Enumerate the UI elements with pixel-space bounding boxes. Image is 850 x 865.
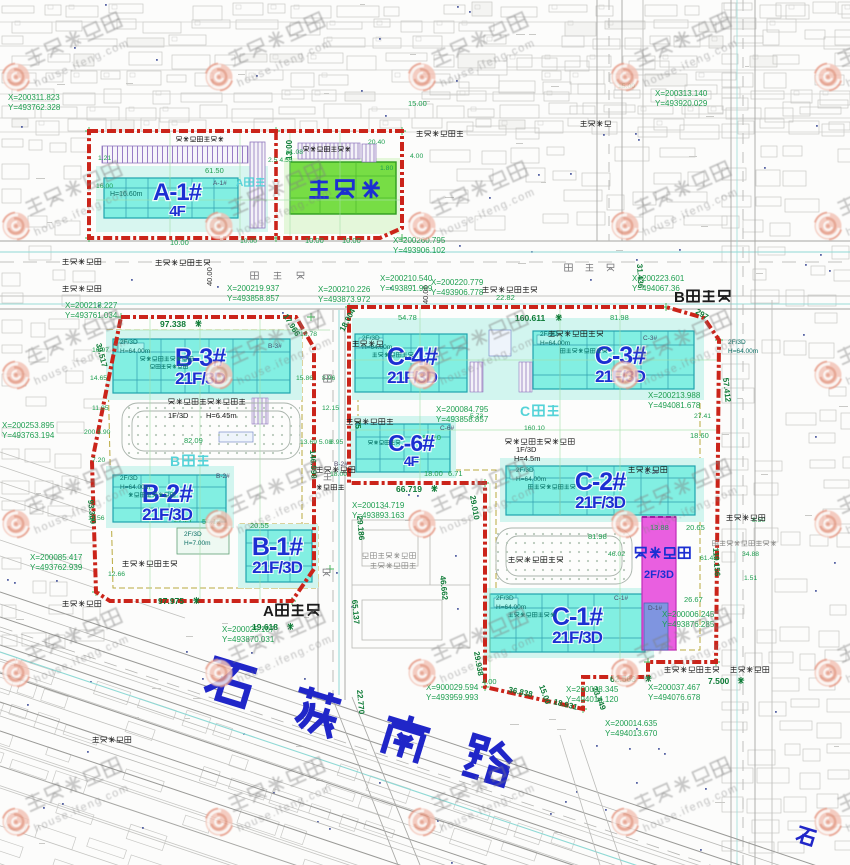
svg-text:1.21: 1.21: [98, 155, 111, 162]
svg-text:61.43: 61.43: [700, 555, 717, 562]
svg-text:7.20: 7.20: [92, 457, 105, 464]
svg-text:31.436: 31.436: [635, 264, 645, 289]
svg-text:4F: 4F: [169, 203, 185, 220]
svg-text:A-1#: A-1#: [213, 180, 227, 187]
svg-text:81.98: 81.98: [610, 313, 629, 322]
svg-text:Y=493906.778: Y=493906.778: [431, 288, 484, 297]
svg-text:1.51: 1.51: [744, 575, 757, 582]
svg-text:4F: 4F: [404, 453, 420, 469]
svg-text:2F/3D: 2F/3D: [644, 569, 674, 581]
svg-text:A: A: [236, 178, 243, 189]
svg-text:X=200210.226: X=200210.226: [318, 285, 371, 294]
svg-text:C-1#: C-1#: [614, 595, 628, 602]
svg-text:H=7.00m: H=7.00m: [184, 540, 211, 547]
svg-text:X=200014.635: X=200014.635: [605, 719, 658, 728]
svg-text:1F/3D: 1F/3D: [168, 411, 189, 420]
svg-text:15.86: 15.86: [296, 375, 313, 382]
svg-text:15.00: 15.00: [408, 99, 427, 108]
svg-text:D-1#: D-1#: [648, 605, 662, 612]
svg-text:C: C: [520, 403, 530, 419]
svg-text:8.95: 8.95: [330, 439, 343, 446]
svg-text:1F/3D: 1F/3D: [516, 445, 537, 454]
svg-text:40.00: 40.00: [421, 285, 430, 304]
svg-text:1.80: 1.80: [380, 165, 393, 172]
svg-text:X=200311.823: X=200311.823: [8, 93, 60, 102]
svg-text:X=200219.937: X=200219.937: [227, 284, 280, 293]
svg-text:18.00: 18.00: [424, 469, 443, 478]
svg-text:B: B: [170, 453, 180, 469]
svg-text:21F/3D: 21F/3D: [252, 558, 302, 577]
svg-text:Y=493763.194: Y=493763.194: [2, 431, 55, 440]
svg-text:160.611: 160.611: [515, 313, 546, 323]
svg-text:27.41: 27.41: [694, 413, 711, 420]
svg-text:Y=494076.678: Y=494076.678: [648, 693, 701, 702]
svg-text:Y=493873.972: Y=493873.972: [318, 295, 371, 304]
svg-text:13.69 5.08: 13.69 5.08: [300, 439, 332, 446]
svg-text:Y=493762.328: Y=493762.328: [8, 103, 61, 112]
svg-text:X=200220.779: X=200220.779: [431, 278, 484, 287]
svg-text:12.66: 12.66: [108, 571, 125, 578]
svg-text:66.719: 66.719: [396, 484, 422, 494]
svg-text:C-2#: C-2#: [575, 468, 626, 496]
svg-text:21F/3D: 21F/3D: [575, 493, 625, 512]
svg-text:H=64.00m: H=64.00m: [540, 340, 570, 347]
svg-text:10.00: 10.00: [170, 238, 189, 247]
svg-text:X=200037.467: X=200037.467: [648, 683, 701, 692]
svg-text:11.85: 11.85: [92, 405, 109, 412]
svg-text:10.00: 10.00: [240, 238, 257, 245]
svg-text:Y=493920.029: Y=493920.029: [655, 99, 708, 108]
svg-text:46.02: 46.02: [608, 551, 625, 558]
svg-text:160.10: 160.10: [524, 425, 545, 432]
svg-text:Y=494013.670: Y=494013.670: [605, 729, 658, 738]
svg-text:A-1#: A-1#: [153, 179, 202, 206]
svg-text:2F/3D: 2F/3D: [540, 331, 558, 338]
svg-text:B-1#: B-1#: [252, 533, 303, 561]
svg-text:4.00: 4.00: [410, 153, 423, 160]
svg-text:200 6.90: 200 6.90: [84, 429, 111, 436]
svg-text:X=200006.245: X=200006.245: [662, 610, 715, 619]
svg-text:H=64.00m: H=64.00m: [120, 348, 150, 355]
svg-text:2F/3D: 2F/3D: [496, 595, 514, 602]
svg-text:97.975: 97.975: [158, 596, 184, 606]
svg-text:61.08: 61.08: [286, 149, 303, 156]
svg-text:Y=493906.102: Y=493906.102: [393, 246, 446, 255]
svg-text:H=6.45m: H=6.45m: [206, 411, 237, 420]
svg-text:X=200313.140: X=200313.140: [655, 89, 708, 98]
svg-text:C-2#: C-2#: [645, 469, 659, 476]
svg-text:6.71: 6.71: [448, 469, 463, 478]
svg-text:2F/3D: 2F/3D: [120, 475, 138, 482]
svg-text:Y=493762.939: Y=493762.939: [30, 563, 83, 572]
svg-text:12.15: 12.15: [322, 405, 339, 412]
svg-text:20.65: 20.65: [686, 523, 705, 532]
svg-text:10.00: 10.00: [305, 236, 324, 245]
svg-text:X=200085.417: X=200085.417: [30, 553, 83, 562]
svg-text:2.5 4.55: 2.5 4.55: [268, 157, 293, 164]
svg-text:X=200134.719: X=200134.719: [352, 501, 405, 510]
svg-text:14.65: 14.65: [90, 375, 107, 382]
svg-text:11.56: 11.56: [88, 515, 105, 522]
svg-text:61.50: 61.50: [205, 166, 224, 175]
svg-text:B-2#: B-2#: [216, 473, 230, 480]
svg-text:H=64.00m: H=64.00m: [362, 344, 392, 351]
svg-text:26.67: 26.67: [684, 595, 703, 604]
svg-text:X=900029.594: X=900029.594: [426, 683, 479, 692]
svg-text:X=200218.227: X=200218.227: [65, 301, 118, 310]
svg-text:40.00: 40.00: [205, 267, 214, 286]
svg-text:B: B: [674, 289, 685, 306]
svg-text:X=200253.895: X=200253.895: [2, 421, 55, 430]
svg-text:C-1#: C-1#: [552, 603, 603, 631]
svg-text:5.73: 5.73: [470, 413, 483, 420]
svg-text:21F/3D: 21F/3D: [552, 628, 602, 647]
svg-text:18.00: 18.00: [330, 471, 347, 478]
svg-text:4.00: 4.00: [482, 677, 497, 686]
svg-text:Y=494081.678: Y=494081.678: [648, 401, 701, 410]
svg-text:7.500: 7.500: [708, 676, 730, 686]
svg-text:54.78: 54.78: [398, 313, 417, 322]
svg-text:C-6#: C-6#: [440, 425, 454, 432]
svg-text:Y=493858.857: Y=493858.857: [227, 294, 280, 303]
svg-text:2F/3D: 2F/3D: [362, 335, 380, 342]
svg-text:18.60: 18.60: [690, 431, 709, 440]
svg-text:B-2#: B-2#: [334, 461, 348, 468]
svg-text:20.40: 20.40: [368, 139, 385, 146]
svg-text:82.09: 82.09: [184, 436, 203, 445]
svg-text:X=200213.988: X=200213.988: [648, 391, 701, 400]
svg-text:X=200210.540: X=200210.540: [380, 274, 433, 283]
svg-text:81.98: 81.98: [588, 532, 607, 541]
svg-text:Y=493959.993: Y=493959.993: [426, 693, 479, 702]
svg-text:22.82: 22.82: [496, 293, 515, 302]
svg-text:2F/3D: 2F/3D: [184, 531, 202, 538]
svg-text:A: A: [263, 603, 274, 620]
svg-text:10.00: 10.00: [342, 236, 361, 245]
svg-text:16.00: 16.00: [96, 183, 113, 190]
svg-text:97.338: 97.338: [160, 319, 186, 329]
svg-text:21F/3D: 21F/3D: [142, 505, 192, 524]
svg-text:34.88: 34.88: [742, 551, 759, 558]
svg-text:75: 75: [353, 420, 363, 430]
